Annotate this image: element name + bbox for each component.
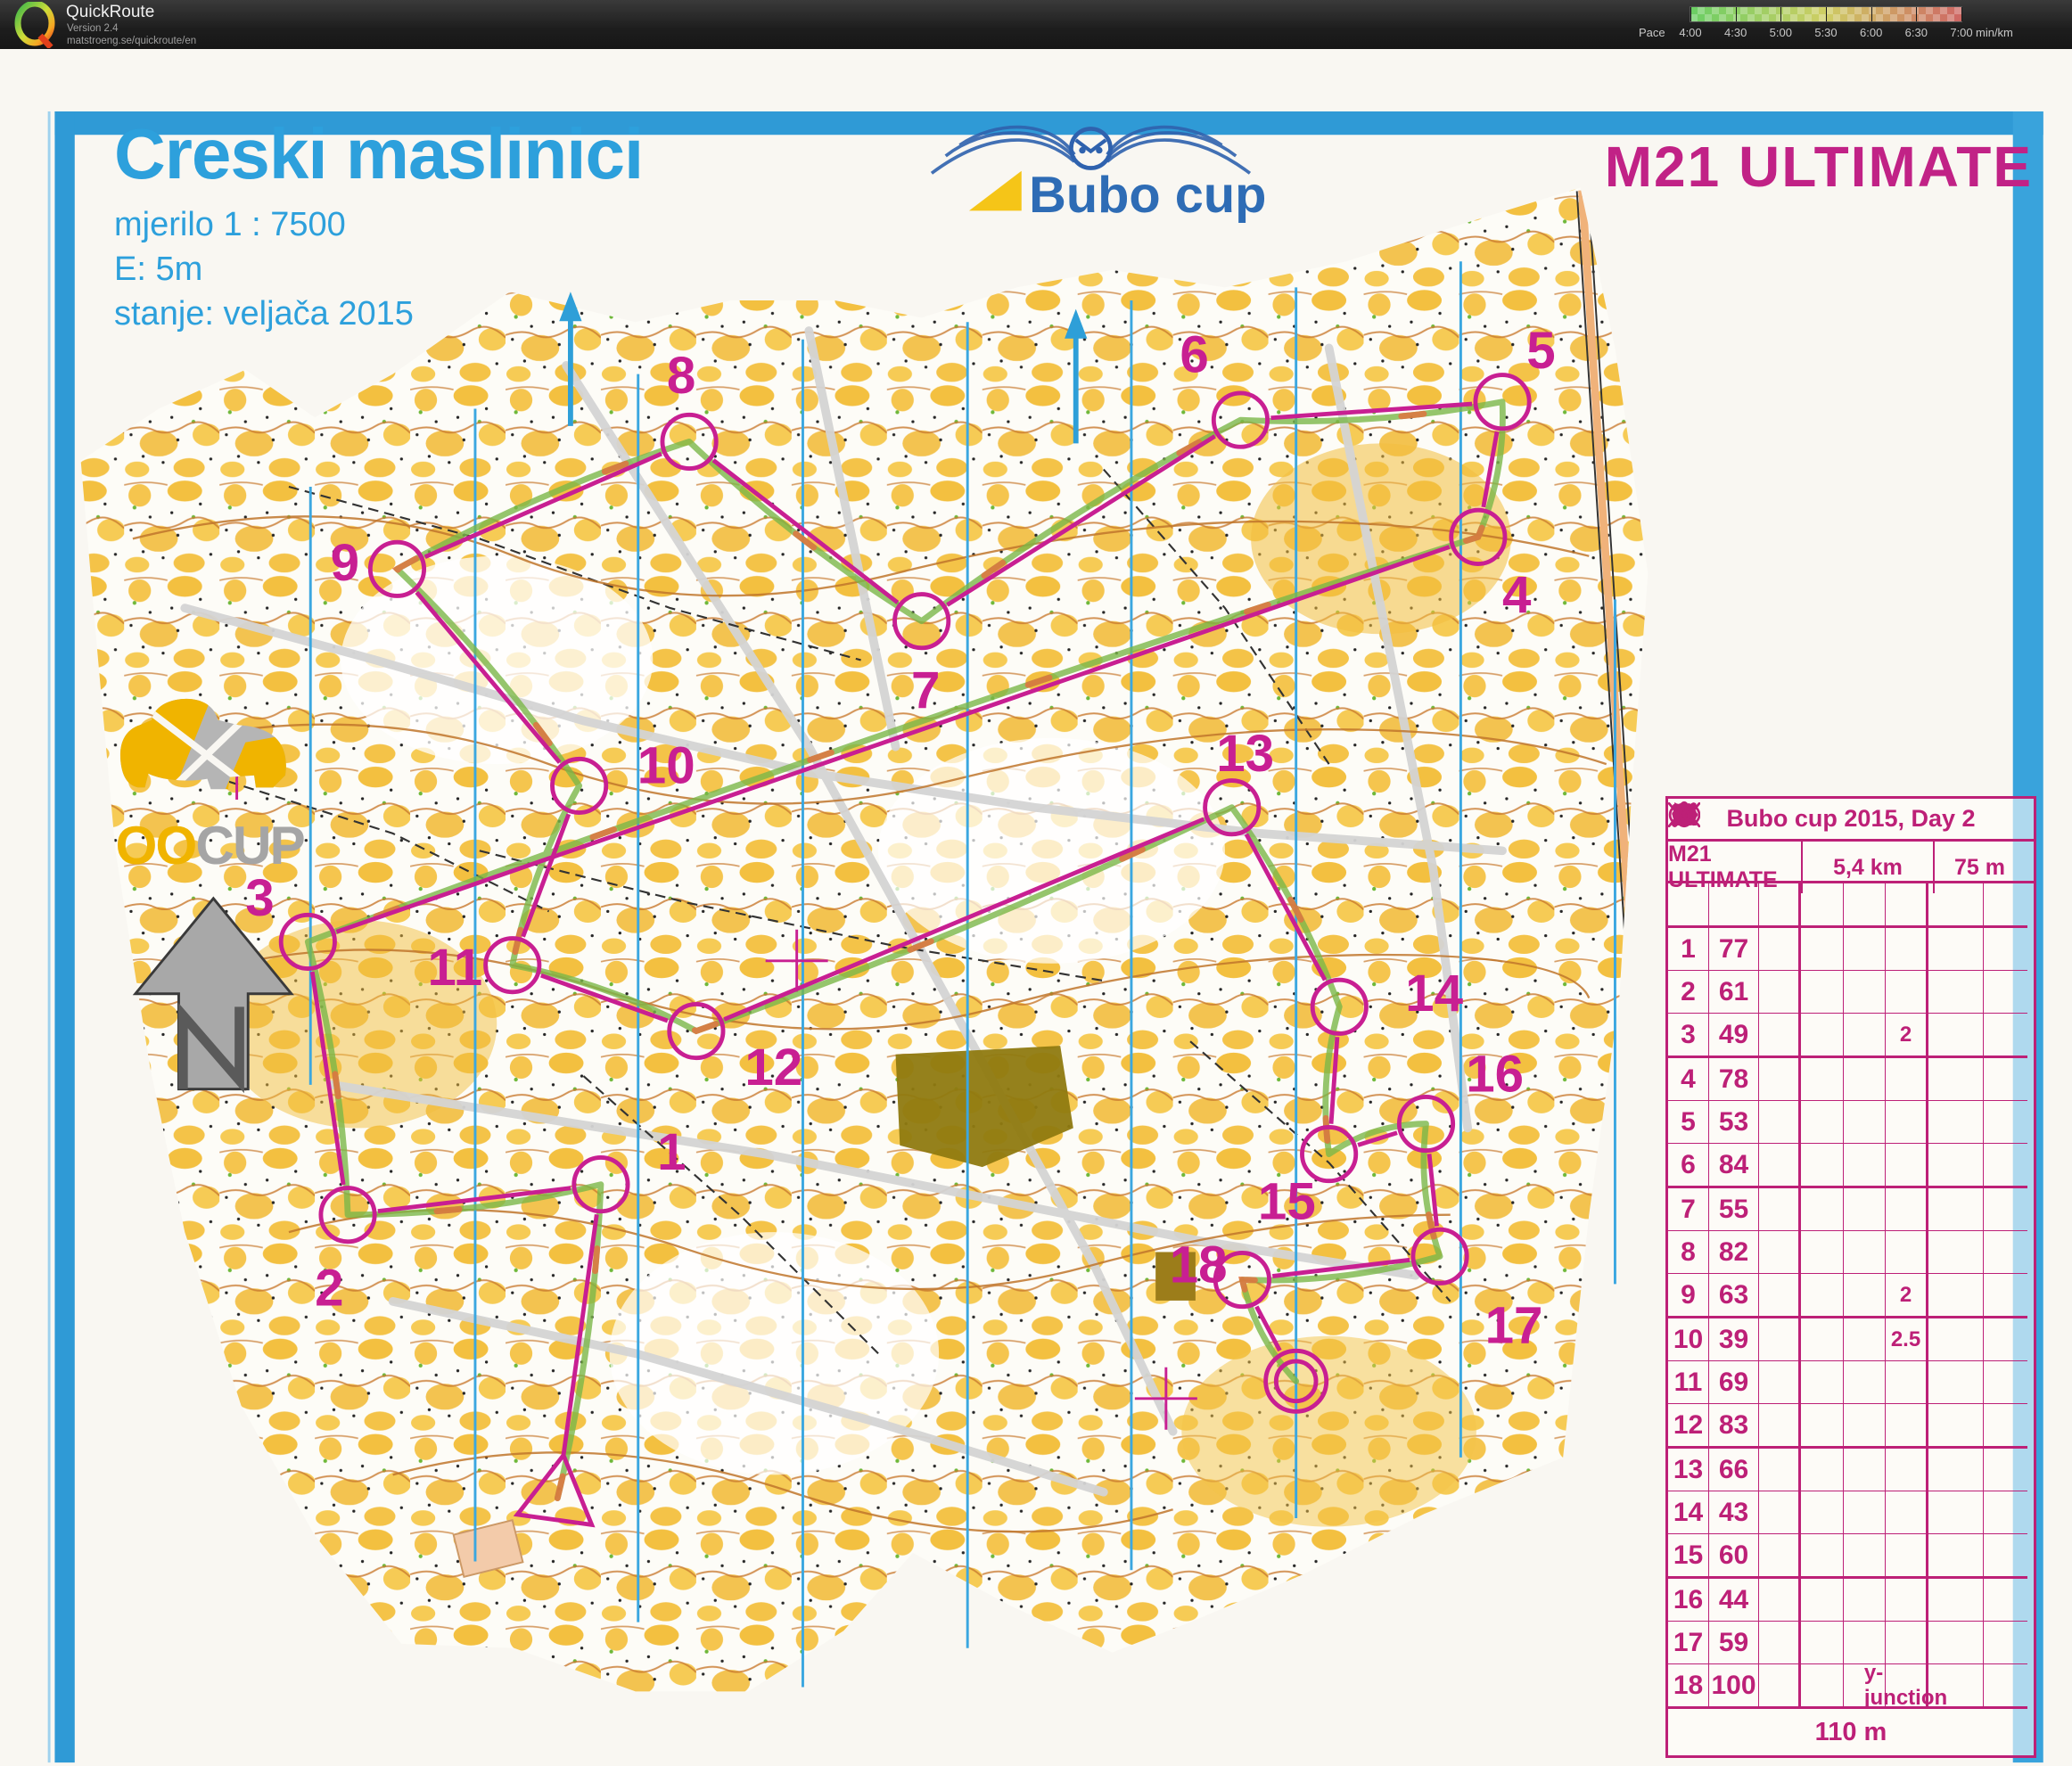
feature-symbol-cell: [1801, 1101, 1844, 1144]
appearance-cell: [1844, 1144, 1886, 1188]
feature-symbol-cell: [1801, 1622, 1844, 1664]
finish-row: 110 m: [1668, 1709, 2034, 1755]
dimension-cell: [1886, 1188, 1928, 1231]
location-symbol-cell: [1928, 1274, 1984, 1318]
control-code-cell: 66: [1709, 1449, 1759, 1491]
pace-tick-label: 5:00: [1770, 26, 1792, 39]
empty-cell: [1709, 883, 1759, 928]
map-name: Creski maslinici: [114, 119, 643, 190]
feature-symbol-cell: [1801, 1144, 1844, 1188]
control-number: 10: [637, 736, 695, 794]
appearance-cell: [1844, 1579, 1886, 1622]
event-title: Bubo cup 2015, Day 2: [1668, 799, 2034, 842]
pace-tick-label: 6:30: [1905, 26, 1928, 39]
appearance-cell: [1844, 1014, 1886, 1058]
other-info-cell: [1984, 1274, 2027, 1318]
control-number-cell: 2: [1668, 971, 1709, 1014]
dimension-cell: 2: [1886, 1014, 1928, 1058]
empty-cell: [1984, 883, 2027, 928]
control-code-cell: 59: [1709, 1622, 1759, 1664]
pace-tick-label: 7:00: [1950, 26, 1972, 39]
feature-symbol-cell: [1801, 1404, 1844, 1449]
control-code-cell: 69: [1709, 1361, 1759, 1404]
control-number: 1: [657, 1123, 686, 1181]
control-code-cell: 43: [1709, 1491, 1759, 1534]
control-code-cell: 63: [1709, 1274, 1759, 1318]
map-contour-interval: E: 5m: [114, 247, 643, 292]
course-class-label: M21 ULTIMATE: [1569, 134, 2033, 200]
control-number-cell: 5: [1668, 1101, 1709, 1144]
location-symbol-cell: [1928, 1449, 1984, 1491]
pace-tick: [1736, 7, 1737, 21]
appearance-cell: [1844, 1058, 1886, 1101]
control-code-cell: 49: [1709, 1014, 1759, 1058]
location-symbol-cell: [1928, 1579, 1984, 1622]
appearance-cell: [1844, 1274, 1886, 1318]
dimension-cell: y-junction: [1886, 1664, 1928, 1709]
control-number-cell: 14: [1668, 1491, 1709, 1534]
control-number: 17: [1485, 1297, 1543, 1355]
which-control-cell: [1759, 1579, 1801, 1622]
other-info-cell: [1984, 1361, 2027, 1404]
empty-cell: [1801, 883, 1844, 928]
location-symbol-cell: [1928, 1622, 1984, 1664]
feature-symbol-cell: [1801, 928, 1844, 971]
feature-symbol-cell: [1801, 1361, 1844, 1404]
which-control-cell: [1759, 1404, 1801, 1449]
control-number: 13: [1216, 725, 1274, 783]
control-number-cell: 6: [1668, 1144, 1709, 1188]
pace-tick: [1871, 7, 1872, 21]
control-code-cell: 60: [1709, 1534, 1759, 1579]
dimension-cell: [1886, 1622, 1928, 1664]
pace-unit: min/km: [1976, 26, 2013, 39]
feature-symbol-cell: [1801, 1664, 1844, 1709]
control-number: 16: [1466, 1046, 1524, 1104]
which-control-cell: [1759, 1274, 1801, 1318]
location-symbol-cell: [1928, 971, 1984, 1014]
feature-symbol-cell: [1801, 1318, 1844, 1361]
location-symbol-cell: [1928, 1318, 1984, 1361]
appearance-cell: [1844, 1361, 1886, 1404]
appearance-cell: [1844, 1318, 1886, 1361]
location-symbol-cell: [1928, 1231, 1984, 1274]
control-number: 14: [1405, 965, 1463, 1023]
pace-tick-label: 6:00: [1860, 26, 1882, 39]
control-number: 5: [1526, 322, 1555, 380]
control-rows: 1772613492478553684755882963210392.51169…: [1668, 883, 2034, 1709]
dimension-cell: [1886, 1579, 1928, 1622]
pace-tick-label: 4:30: [1724, 26, 1747, 39]
which-control-cell: [1759, 928, 1801, 971]
dimension-cell: 2: [1886, 1274, 1928, 1318]
which-control-cell: [1759, 1491, 1801, 1534]
which-control-cell: [1759, 1144, 1801, 1188]
app-title: QuickRoute: [66, 3, 154, 22]
control-description-sheet: Bubo cup 2015, Day 2 M21 ULTIMATE 5,4 km…: [1665, 796, 2036, 1758]
control-code-cell: 53: [1709, 1101, 1759, 1144]
feature-symbol-cell: [1801, 1188, 1844, 1231]
appearance-cell: [1844, 1491, 1886, 1534]
control-number-cell: 15: [1668, 1534, 1709, 1579]
other-info-cell: [1984, 1318, 2027, 1361]
empty-cell: [1759, 883, 1801, 928]
control-number: 8: [667, 347, 695, 405]
control-number: 3: [245, 869, 274, 927]
control-number-cell: 8: [1668, 1231, 1709, 1274]
control-number: 7: [911, 661, 940, 719]
which-control-cell: [1759, 1449, 1801, 1491]
dimension-cell: [1886, 971, 1928, 1014]
pace-label: Pace: [1639, 26, 1665, 39]
pace-legend: 4:004:305:005:306:006:307:00Pacemin/km: [1635, 4, 2054, 46]
appearance-cell: [1844, 971, 1886, 1014]
which-control-cell: [1759, 1622, 1801, 1664]
control-code-cell: 78: [1709, 1058, 1759, 1101]
control-number: 6: [1180, 326, 1208, 384]
which-control-cell: [1759, 971, 1801, 1014]
other-info-cell: [1984, 1449, 2027, 1491]
location-symbol-cell: [1928, 1664, 1984, 1709]
appearance-cell: [1844, 1534, 1886, 1579]
control-code-cell: 55: [1709, 1188, 1759, 1231]
dimension-cell: [1886, 1534, 1928, 1579]
control-code-cell: 77: [1709, 928, 1759, 971]
feature-symbol-cell: [1801, 971, 1844, 1014]
control-number-cell: 17: [1668, 1622, 1709, 1664]
dimension-cell: [1886, 1101, 1928, 1144]
pace-tick: [1961, 7, 1962, 21]
course-header-row: M21 ULTIMATE 5,4 km 75 m: [1668, 842, 2034, 883]
dimension-cell: [1886, 1231, 1928, 1274]
which-control-cell: [1759, 1361, 1801, 1404]
other-info-cell: [1984, 1404, 2027, 1449]
dimension-cell: [1886, 1449, 1928, 1491]
empty-cell: [1928, 883, 1984, 928]
oocup-text: OOCUP: [115, 815, 304, 875]
location-symbol-cell: [1928, 1491, 1984, 1534]
control-number: 11: [427, 939, 482, 997]
location-symbol-cell: [1928, 928, 1984, 971]
feature-symbol-cell: [1801, 1014, 1844, 1058]
pace-tick-label: 5:30: [1814, 26, 1837, 39]
appearance-cell: [1844, 928, 1886, 971]
dimension-cell: [1886, 1404, 1928, 1449]
location-symbol-cell: [1928, 1361, 1984, 1404]
quickroute-logo-icon: [11, 2, 61, 48]
quickroute-window: QuickRoute Version 2.4 matstroeng.se/qui…: [0, 0, 2072, 1766]
feature-symbol-cell: [1801, 1491, 1844, 1534]
location-symbol-cell: [1928, 1534, 1984, 1579]
control-number-cell: 11: [1668, 1361, 1709, 1404]
location-symbol-cell: [1928, 1188, 1984, 1231]
location-symbol-cell: [1928, 1058, 1984, 1101]
which-control-cell: [1759, 1014, 1801, 1058]
which-control-cell: [1759, 1231, 1801, 1274]
pace-tick: [1780, 7, 1781, 21]
appearance-cell: [1844, 1449, 1886, 1491]
control-number: 12: [744, 1039, 802, 1097]
control-code-cell: 44: [1709, 1579, 1759, 1622]
empty-cell: [1886, 883, 1928, 928]
dimension-cell: [1886, 1491, 1928, 1534]
appearance-cell: [1844, 1404, 1886, 1449]
start-symbol-cell: [1668, 883, 1709, 928]
other-info-cell: [1984, 1534, 2027, 1579]
appearance-cell: [1844, 1622, 1886, 1664]
app-url: matstroeng.se/quickroute/en: [67, 36, 196, 46]
control-number-cell: 10: [1668, 1318, 1709, 1361]
feature-symbol-cell: [1801, 1274, 1844, 1318]
other-info-cell: [1984, 1231, 2027, 1274]
bubo-triangle-icon: [969, 171, 1022, 211]
dimension-cell: [1886, 1361, 1928, 1404]
control-number-cell: 4: [1668, 1058, 1709, 1101]
bubo-cup-logo: Bubo cup: [932, 127, 1266, 224]
location-symbol-cell: [1928, 1014, 1984, 1058]
dimension-cell: 2.5: [1886, 1318, 1928, 1361]
pace-tick: [1916, 7, 1917, 21]
feature-symbol-cell: [1801, 1534, 1844, 1579]
control-code-cell: 83: [1709, 1404, 1759, 1449]
other-info-cell: [1984, 928, 2027, 971]
other-info-cell: [1984, 1014, 2027, 1058]
control-number-cell: 12: [1668, 1404, 1709, 1449]
pace-tick: [1690, 7, 1691, 21]
location-symbol-cell: [1928, 1144, 1984, 1188]
appearance-cell: [1844, 1188, 1886, 1231]
feature-symbol-cell: [1801, 1058, 1844, 1101]
map-title-block: Creski maslinici mjerilo 1 : 7500 E: 5m …: [114, 119, 643, 336]
control-code-cell: 61: [1709, 971, 1759, 1014]
control-number-cell: 18: [1668, 1664, 1709, 1709]
other-info-cell: [1984, 1622, 2027, 1664]
control-number: 15: [1258, 1173, 1316, 1231]
control-number-cell: 7: [1668, 1188, 1709, 1231]
location-symbol-cell: [1928, 1101, 1984, 1144]
empty-cell: [1844, 883, 1886, 928]
bubo-cup-text: Bubo cup: [1029, 167, 1266, 224]
other-info-cell: [1984, 1664, 2027, 1709]
which-control-cell: [1759, 1101, 1801, 1144]
control-number-cell: 13: [1668, 1449, 1709, 1491]
other-info-cell: [1984, 1491, 2027, 1534]
map-state: stanje: veljača 2015: [114, 292, 643, 336]
other-info-cell: [1984, 1144, 2027, 1188]
feature-symbol-cell: [1801, 1579, 1844, 1622]
which-control-cell: [1759, 1318, 1801, 1361]
other-info-cell: [1984, 1101, 2027, 1144]
control-number-cell: 3: [1668, 1014, 1709, 1058]
dimension-cell: [1886, 1058, 1928, 1101]
control-number-cell: 9: [1668, 1274, 1709, 1318]
feature-symbol-cell: [1801, 1449, 1844, 1491]
which-control-cell: [1759, 1534, 1801, 1579]
control-number: 2: [315, 1260, 343, 1318]
dimension-cell: [1886, 1144, 1928, 1188]
feature-symbol-cell: [1801, 1231, 1844, 1274]
other-info-cell: [1984, 971, 2027, 1014]
other-info-cell: [1984, 1058, 2027, 1101]
other-info-cell: [1984, 1188, 2027, 1231]
which-control-cell: [1759, 1664, 1801, 1709]
control-number: 9: [331, 534, 359, 592]
scanned-map-paper: 123456789101112131415161718 Bubo cup: [0, 49, 2072, 1766]
appearance-cell: [1844, 1231, 1886, 1274]
other-info-cell: [1984, 1579, 2027, 1622]
control-number-cell: 16: [1668, 1579, 1709, 1622]
appearance-cell: [1844, 1101, 1886, 1144]
control-number: 18: [1170, 1236, 1228, 1294]
control-code-cell: 39: [1709, 1318, 1759, 1361]
map-scale: mjerilo 1 : 7500: [114, 202, 643, 247]
finish-distance: 110 m: [1675, 1718, 2027, 1747]
app-header: QuickRoute Version 2.4 matstroeng.se/qui…: [0, 0, 2072, 50]
which-control-cell: [1759, 1058, 1801, 1101]
control-number-cell: 1: [1668, 928, 1709, 971]
control-number: 4: [1502, 566, 1532, 624]
which-control-cell: [1759, 1188, 1801, 1231]
pace-tick: [1826, 7, 1827, 21]
pace-tick-label: 4:00: [1679, 26, 1701, 39]
app-version: Version 2.4: [67, 23, 119, 34]
dimension-cell: [1886, 928, 1928, 971]
control-code-cell: 84: [1709, 1144, 1759, 1188]
location-symbol-cell: [1928, 1404, 1984, 1449]
control-code-cell: 100: [1709, 1664, 1759, 1709]
control-code-cell: 82: [1709, 1231, 1759, 1274]
